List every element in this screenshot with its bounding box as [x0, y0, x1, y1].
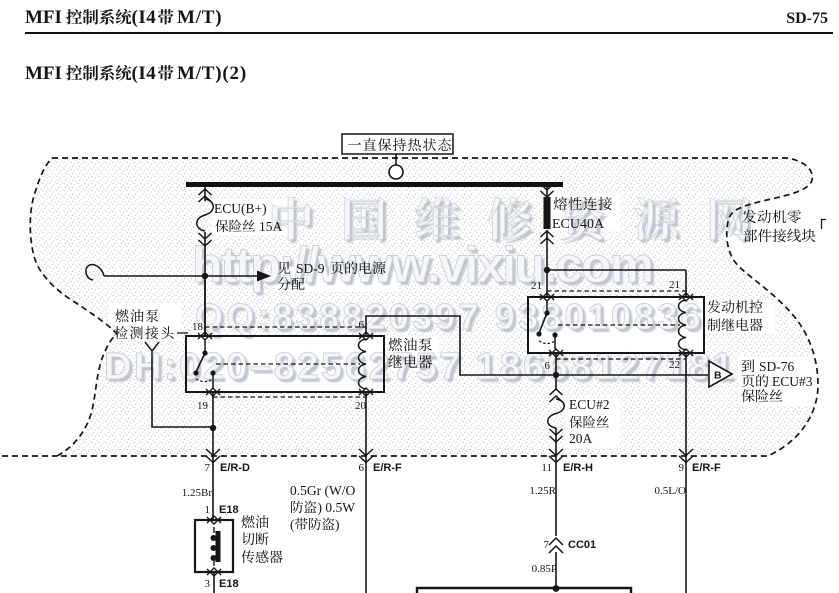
svg-text:E18: E18 [219, 578, 239, 590]
svg-text:1.25Br: 1.25Br [182, 487, 213, 499]
svg-text:E18: E18 [219, 504, 239, 516]
svg-text:E/R-H: E/R-H [563, 462, 593, 474]
svg-text:E/R-D: E/R-D [220, 462, 250, 474]
svg-text:ECU#3: ECU#3 [772, 374, 813, 389]
svg-text:M/T): M/T) [177, 7, 222, 28]
svg-text:0.5Gr (W/O: 0.5Gr (W/O [290, 483, 355, 498]
svg-text:18: 18 [192, 321, 204, 333]
svg-text:20A: 20A [569, 431, 593, 446]
svg-text:(I4: (I4 [132, 63, 157, 84]
svg-text:ECU#2: ECU#2 [569, 397, 610, 412]
svg-text:ECU(B+): ECU(B+) [214, 201, 267, 216]
svg-text:SD-75: SD-75 [786, 10, 828, 27]
svg-text:SD-76: SD-76 [759, 359, 795, 374]
svg-text:0.5L/O: 0.5L/O [655, 485, 687, 497]
svg-text:ECU40A: ECU40A [552, 217, 605, 232]
svg-text:7: 7 [544, 539, 550, 551]
svg-text:MFI: MFI [25, 63, 62, 84]
svg-text:20: 20 [355, 400, 367, 412]
svg-text:SD-9: SD-9 [296, 261, 325, 276]
svg-text:22: 22 [669, 359, 680, 371]
svg-text:(I4: (I4 [132, 7, 157, 28]
svg-text:1: 1 [205, 504, 211, 516]
svg-text:B: B [714, 370, 722, 382]
svg-text:M/T)(2): M/T)(2) [177, 63, 247, 84]
svg-text:19: 19 [197, 400, 209, 412]
svg-text:3: 3 [205, 578, 211, 590]
svg-text:) 0.5W: ) 0.5W [318, 500, 356, 515]
svg-text:1.25R: 1.25R [529, 485, 556, 497]
svg-text:0.85P: 0.85P [532, 563, 557, 575]
svg-text:6: 6 [359, 319, 365, 331]
svg-text:11: 11 [541, 462, 552, 474]
svg-text:21: 21 [669, 279, 680, 291]
svg-text:E/R-F: E/R-F [373, 462, 402, 474]
svg-text:9: 9 [679, 462, 685, 474]
svg-text:(: ( [290, 517, 295, 532]
svg-text:15A: 15A [259, 219, 283, 234]
svg-text:6: 6 [359, 462, 365, 474]
svg-text:7: 7 [205, 462, 211, 474]
svg-text:MFI: MFI [25, 7, 62, 28]
svg-text:E/R-F: E/R-F [692, 462, 721, 474]
svg-text:): ) [335, 517, 340, 532]
svg-text:21: 21 [531, 280, 542, 292]
svg-text:CC01: CC01 [568, 539, 596, 551]
svg-text:6: 6 [545, 360, 551, 372]
svg-text:http://www.vixiu.com: http://www.vixiu.com [192, 237, 652, 293]
